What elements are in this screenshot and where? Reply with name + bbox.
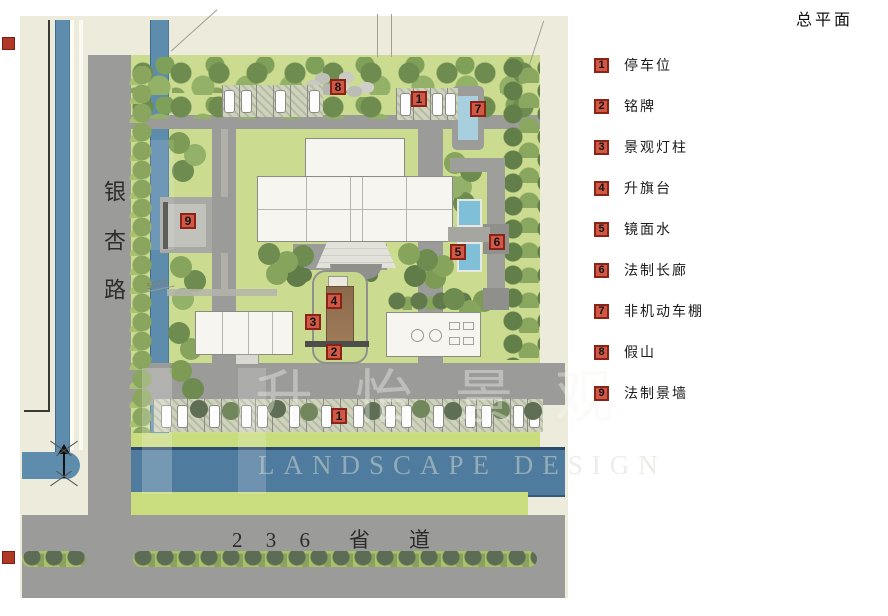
legend-label: 法制长廊 bbox=[624, 260, 688, 280]
legend-label: 非机动车棚 bbox=[624, 301, 704, 321]
car bbox=[309, 90, 320, 113]
watermark-en: LANDSCAPE DESIGN bbox=[258, 450, 667, 481]
watermark-bar bbox=[142, 368, 172, 494]
pool-walkway bbox=[448, 227, 490, 242]
legend-label: 景观灯柱 bbox=[624, 137, 688, 157]
west-building bbox=[195, 311, 293, 355]
legend-number-badge: 9 bbox=[594, 386, 609, 401]
parking-row-north-right bbox=[396, 88, 458, 120]
legend-number-badge: 8 bbox=[594, 345, 609, 360]
car bbox=[445, 93, 456, 116]
tree-cluster bbox=[168, 322, 190, 344]
map-marker-1: 1 bbox=[411, 91, 427, 107]
legend-number-badge: 5 bbox=[594, 222, 609, 237]
legend-number-badge: 6 bbox=[594, 263, 609, 278]
tree-cluster bbox=[298, 268, 312, 282]
south-road-char: 道 bbox=[409, 528, 439, 552]
east-tree-band bbox=[503, 58, 540, 360]
tree-cluster bbox=[170, 256, 192, 278]
legend: 1 停车位 2 铭牌 3 景观灯柱 4 升旗台 5 镜面水 6 法制长廊 7 非… bbox=[594, 55, 704, 403]
map-marker-1: 1 bbox=[331, 408, 347, 424]
west-canal bbox=[55, 20, 70, 452]
site-plan-canvas: 升怡景观 LANDSCAPE DESIGN 银杏路 2 3 6省道 5000 总… bbox=[0, 0, 888, 616]
table bbox=[449, 337, 460, 345]
south-road-number: 2 3 6 bbox=[232, 528, 319, 552]
round-table bbox=[411, 329, 424, 342]
page-title: 总平面 bbox=[796, 6, 853, 30]
survey-line bbox=[377, 14, 378, 57]
boundary-line bbox=[48, 20, 50, 412]
map-marker-5: 5 bbox=[450, 244, 466, 260]
legend-item: 6 法制长廊 bbox=[594, 260, 704, 280]
legend-item: 5 镜面水 bbox=[594, 219, 704, 239]
west-road-label: 银杏路 bbox=[97, 180, 129, 327]
map-marker-4: 4 bbox=[326, 293, 342, 309]
footpath bbox=[221, 253, 228, 289]
parking-row-north-left bbox=[222, 85, 323, 117]
legend-item: 3 景观灯柱 bbox=[594, 137, 704, 157]
watermark-bar bbox=[150, 140, 174, 250]
legend-item: 4 升旗台 bbox=[594, 178, 704, 198]
main-building-north-wing bbox=[305, 138, 405, 178]
car bbox=[177, 405, 188, 428]
table bbox=[449, 322, 460, 330]
legend-item: 1 停车位 bbox=[594, 55, 704, 75]
main-building bbox=[257, 176, 453, 242]
map-marker-7: 7 bbox=[470, 101, 486, 117]
legend-number-badge: 3 bbox=[594, 140, 609, 155]
corridor-pad bbox=[483, 288, 509, 310]
legend-label: 镜面水 bbox=[624, 219, 672, 239]
legend-number-badge: 1 bbox=[594, 58, 609, 73]
car bbox=[400, 93, 411, 116]
legend-label: 铭牌 bbox=[624, 96, 656, 116]
legend-item: 9 法制景墙 bbox=[594, 383, 704, 403]
legend-item: 2 铭牌 bbox=[594, 96, 704, 116]
edge-mark bbox=[2, 37, 15, 50]
map-marker-2: 2 bbox=[326, 344, 342, 360]
survey-line bbox=[391, 14, 392, 57]
legend-label: 停车位 bbox=[624, 55, 672, 75]
tree-cluster bbox=[398, 243, 420, 265]
footpath bbox=[167, 289, 277, 296]
car bbox=[224, 90, 235, 113]
south-road-label: 2 3 6省道 bbox=[232, 524, 439, 554]
footpath bbox=[221, 129, 228, 197]
table bbox=[463, 322, 474, 330]
round-table bbox=[429, 329, 442, 342]
south-road-char: 省 bbox=[349, 528, 379, 552]
legend-label: 假山 bbox=[624, 342, 656, 362]
boundary-line bbox=[24, 410, 50, 412]
map-marker-3: 3 bbox=[305, 314, 321, 330]
car bbox=[209, 405, 220, 428]
green-strip bbox=[131, 433, 540, 448]
street-tree-row bbox=[22, 551, 86, 567]
legend-number-badge: 4 bbox=[594, 181, 609, 196]
legend-label: 升旗台 bbox=[624, 178, 672, 198]
car bbox=[241, 90, 252, 113]
tree-row bbox=[388, 292, 480, 310]
mirror-pool bbox=[457, 199, 482, 227]
tree-cluster bbox=[443, 288, 465, 310]
edge-mark bbox=[2, 551, 15, 564]
car bbox=[275, 90, 286, 113]
legend-item: 8 假山 bbox=[594, 342, 704, 362]
tree-cluster bbox=[258, 243, 280, 265]
legend-number-badge: 2 bbox=[594, 99, 609, 114]
legend-number-badge: 7 bbox=[594, 304, 609, 319]
verge-strip bbox=[79, 20, 83, 450]
map-marker-8: 8 bbox=[330, 79, 346, 95]
legend-item: 7 非机动车棚 bbox=[594, 301, 704, 321]
car bbox=[432, 93, 443, 116]
legend-label: 法制景墙 bbox=[624, 383, 688, 403]
parking-tree-row bbox=[190, 400, 208, 418]
map-marker-9: 9 bbox=[180, 213, 196, 229]
green-strip bbox=[131, 492, 528, 515]
table bbox=[463, 337, 474, 345]
map-marker-6: 6 bbox=[489, 234, 505, 250]
